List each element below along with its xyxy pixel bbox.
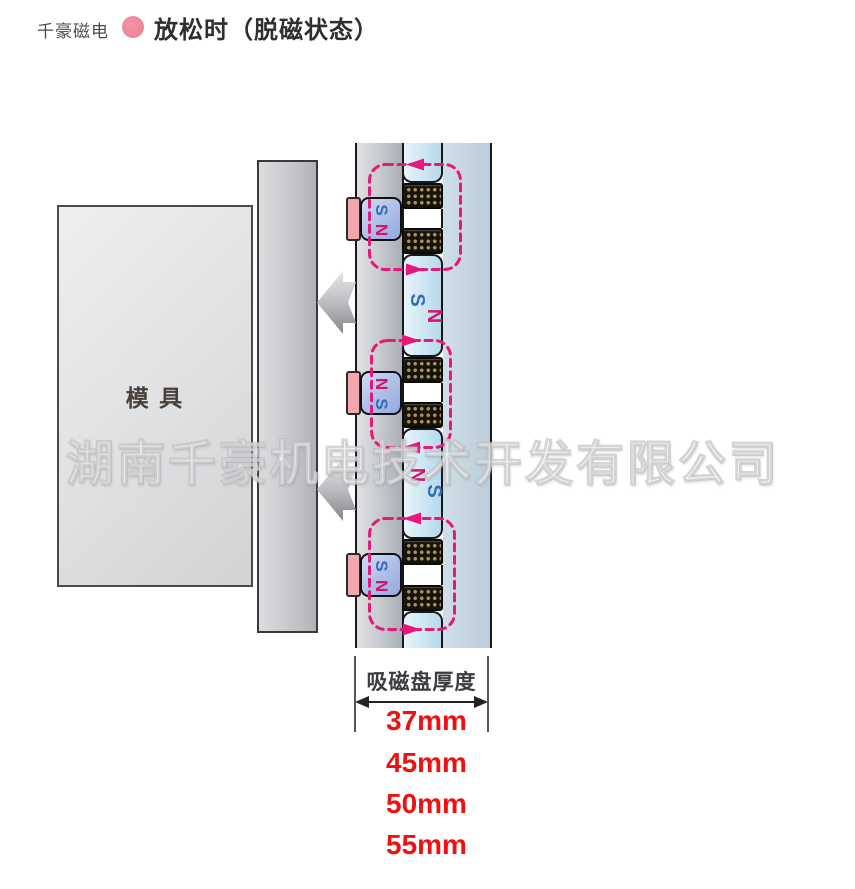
dimension-arrowhead-right-icon <box>474 696 488 708</box>
watermark: 湖南千豪机电技术开发有限公司 <box>66 424 780 494</box>
mold-block: 模 具 <box>57 205 253 587</box>
thickness-value: 55mm <box>386 831 467 859</box>
dimension-extension-line <box>354 656 356 732</box>
magnet-pink-strip <box>346 553 361 597</box>
thickness-value: 45mm <box>386 749 467 777</box>
thickness-value: 37mm <box>386 707 467 735</box>
page-title: 放松时（脱磁状态） <box>154 10 379 45</box>
mold-label: 模 具 <box>59 379 251 413</box>
dimension-label: 吸磁盘厚度 <box>350 666 493 696</box>
brand-text: 千豪磁电 <box>37 17 109 42</box>
brand-bullet-icon <box>122 16 144 38</box>
dimension-arrow-line <box>368 701 475 703</box>
segment-pole-label: N <box>424 307 444 325</box>
flux-loop <box>368 163 462 271</box>
magnet-pink-strip <box>346 371 361 415</box>
magnetic-chuck: S N N S S N S N N S <box>355 143 492 648</box>
magnet-pink-strip <box>346 197 361 241</box>
page: 千豪磁电 放松时（脱磁状态） 模 具 <box>0 0 855 889</box>
thickness-value: 50mm <box>386 790 467 818</box>
backing-bar <box>257 160 318 633</box>
flux-loop <box>368 517 456 631</box>
dimension-arrowhead-left-icon <box>355 696 369 708</box>
left-block-arrow-icon <box>317 268 356 337</box>
dimension-extension-line <box>487 656 489 732</box>
